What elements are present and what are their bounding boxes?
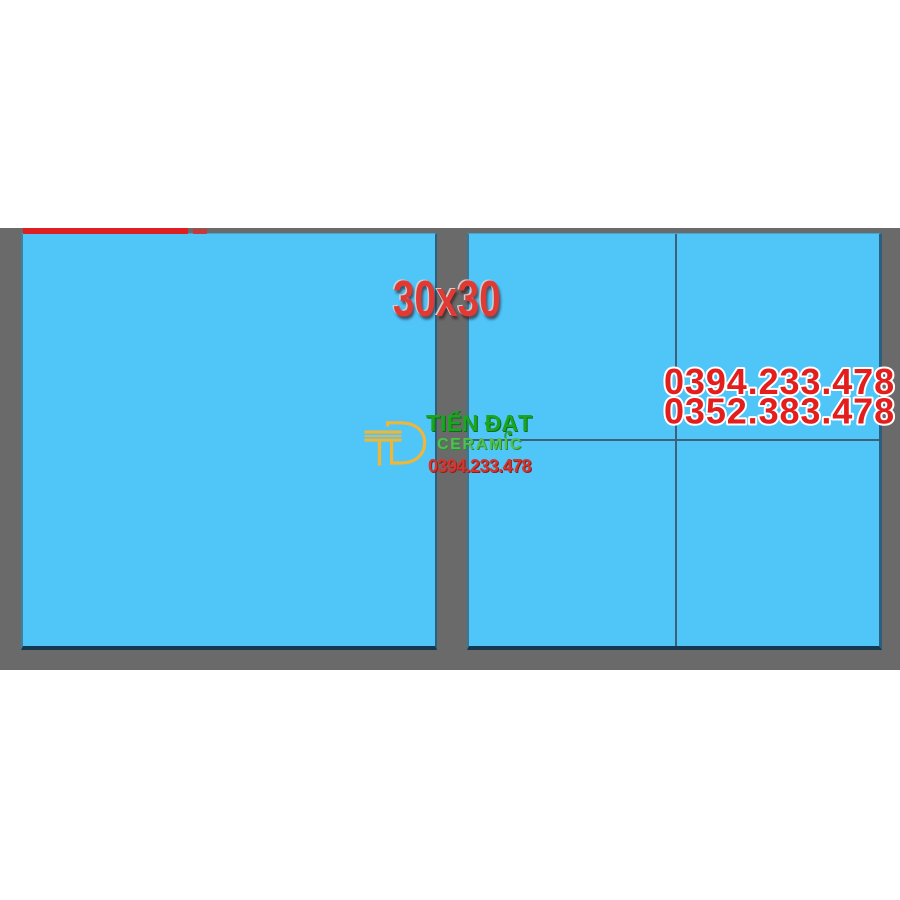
svg-text:0352.383.478: 0352.383.478 bbox=[664, 391, 895, 432]
